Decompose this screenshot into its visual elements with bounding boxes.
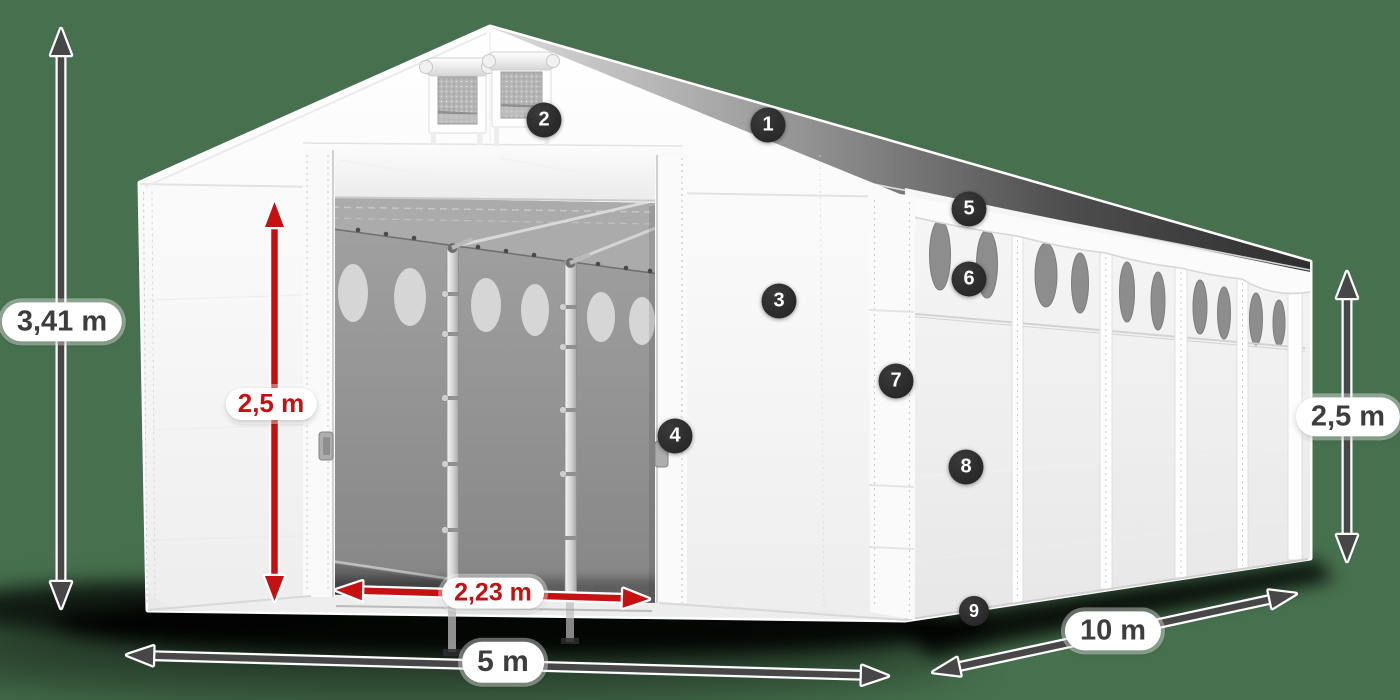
entrance-header [303,143,683,201]
total-height-label: 3,41 m [2,302,122,341]
door-right-edge [655,155,687,603]
part-marker-3[interactable]: 3 [762,284,797,319]
vent-roller [486,52,556,70]
entrance-width-label: 2,23 m [442,578,544,609]
part-marker-2[interactable]: 2 [527,103,562,138]
part-marker-6[interactable]: 6 [952,262,987,297]
side-height-label: 2,5 m [1296,397,1400,436]
tent-dimension-diagram: 3,41 m 2,5 m 2,23 m 5 m 10 m 2,5 m 1 2 3… [0,0,1400,700]
width-label: 5 m [462,642,544,683]
part-marker-8[interactable]: 8 [949,450,984,485]
entrance-interior [311,197,661,625]
part-marker-1[interactable]: 1 [751,108,786,143]
part-marker-4[interactable]: 4 [658,419,693,454]
part-marker-9[interactable]: 9 [959,596,989,626]
length-label: 10 m [1065,611,1161,650]
tent-illustration [0,0,1400,700]
part-marker-5[interactable]: 5 [952,192,987,227]
entrance-height-label: 2,5 m [226,388,317,420]
vent-roller [424,58,490,76]
corner-band [868,190,915,620]
part-marker-7[interactable]: 7 [879,364,914,399]
door-left-edge [303,150,335,597]
gable-vent [420,58,495,145]
